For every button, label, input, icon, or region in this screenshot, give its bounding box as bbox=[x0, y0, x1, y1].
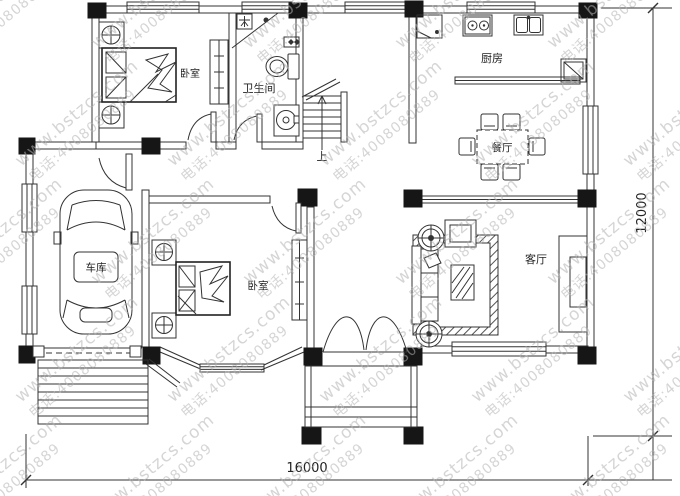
kitchen: 厨房 bbox=[417, 15, 586, 82]
living-room: 客厅 bbox=[412, 220, 587, 347]
dimension-lines: 16000 12000 bbox=[21, 3, 672, 488]
dimension-right: 12000 bbox=[635, 192, 650, 233]
label-bedroom-top: 卧室 bbox=[180, 67, 200, 80]
bathroom: 卫生间 bbox=[232, 13, 300, 136]
bedroom-top: 卧室 bbox=[99, 22, 228, 128]
garage: 车库 bbox=[54, 190, 138, 334]
doors bbox=[99, 112, 301, 233]
label-kitchen: 厨房 bbox=[481, 52, 503, 65]
label-living: 客厅 bbox=[525, 252, 547, 266]
entrance-porch bbox=[305, 317, 417, 427]
bedroom-bottom: 卧室 bbox=[152, 240, 307, 338]
floorplan-drawing: 上 卫生间 bbox=[0, 0, 680, 496]
stairs: 上 bbox=[302, 79, 341, 163]
floorplan-page: 上 卫生间 bbox=[0, 0, 680, 496]
label-dining: 餐厅 bbox=[492, 141, 513, 154]
bay-window bbox=[160, 347, 304, 372]
dimension-bottom: 16000 bbox=[286, 461, 327, 476]
label-garage: 车库 bbox=[86, 261, 107, 274]
dining-room: 餐厅 bbox=[459, 114, 545, 180]
label-bedroom-bottom: 卧室 bbox=[248, 279, 269, 292]
label-bathroom: 卫生间 bbox=[243, 81, 276, 95]
stairs-up-label: 上 bbox=[317, 150, 328, 163]
